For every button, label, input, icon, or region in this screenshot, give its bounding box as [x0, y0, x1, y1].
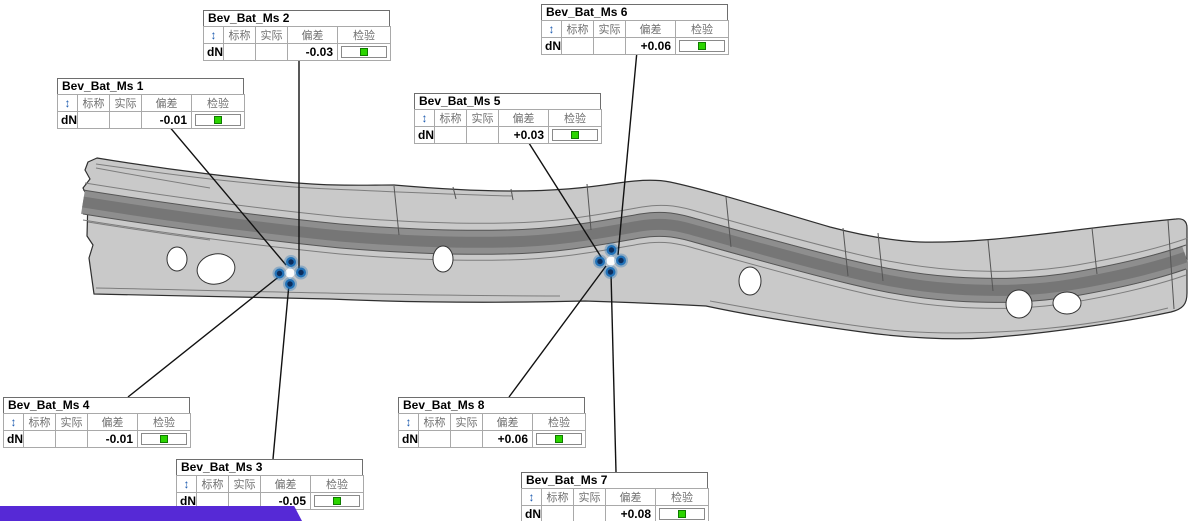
check-cell — [138, 431, 191, 448]
row-label: dN — [542, 38, 562, 55]
col-deviation-label: 偏差 — [88, 414, 138, 431]
nominal-value — [419, 431, 451, 448]
col-nominal-label: 标称 — [24, 414, 56, 431]
callout-table: ↕ 标称 实际 偏差 检验 dN +0.06 — [398, 413, 586, 448]
row-label: dN — [415, 127, 435, 144]
pass-indicator-square — [698, 42, 706, 50]
callout-title: Bev_Bat_Ms 1 — [57, 78, 244, 95]
callout-title: Bev_Bat_Ms 7 — [521, 472, 708, 489]
callout-title: Bev_Bat_Ms 8 — [398, 397, 585, 414]
pass-indicator-square — [555, 435, 563, 443]
col-actual-label: 实际 — [56, 414, 88, 431]
measurement-callout-ms4[interactable]: Bev_Bat_Ms 4 ↕ 标称 实际 偏差 检验 dN -0.01 — [3, 397, 190, 448]
col-check-label: 检验 — [533, 414, 586, 431]
callout-table: ↕ 标称 实际 偏差 检验 dN +0.03 — [414, 109, 602, 144]
callout-table: ↕ 标称 实际 偏差 检验 dN +0.06 — [541, 20, 729, 55]
check-indicator — [659, 508, 705, 520]
deviation-value: -0.01 — [88, 431, 138, 448]
col-deviation-label: 偏差 — [288, 27, 338, 44]
check-indicator — [679, 40, 725, 52]
measurement-point[interactable] — [593, 255, 607, 269]
pass-indicator-square — [571, 131, 579, 139]
nominal-value — [562, 38, 594, 55]
actual-value — [56, 431, 88, 448]
pass-indicator-square — [160, 435, 168, 443]
col-actual-label: 实际 — [574, 489, 606, 506]
direction-arrow-icon: ↕ — [522, 489, 542, 506]
measurement-point[interactable] — [283, 277, 297, 291]
row-label: dN — [399, 431, 419, 448]
pass-indicator-square — [333, 497, 341, 505]
col-check-label: 检验 — [192, 95, 245, 112]
row-label: dN — [58, 112, 78, 129]
leader-line-ms3 — [273, 284, 289, 459]
col-nominal-label: 标称 — [197, 476, 229, 493]
actual-value — [594, 38, 626, 55]
deviation-value: +0.08 — [606, 506, 656, 521]
col-nominal-label: 标称 — [224, 27, 256, 44]
col-actual-label: 实际 — [451, 414, 483, 431]
rail-part — [83, 158, 1188, 339]
check-indicator — [552, 129, 598, 141]
check-indicator — [314, 495, 360, 507]
row-label: dN — [522, 506, 542, 521]
check-cell — [676, 38, 729, 55]
col-check-label: 检验 — [311, 476, 364, 493]
check-indicator — [341, 46, 387, 58]
measurement-callout-ms1[interactable]: Bev_Bat_Ms 1 ↕ 标称 实际 偏差 检验 dN -0.01 — [57, 78, 244, 129]
deviation-value: -0.03 — [288, 44, 338, 61]
measurement-callout-ms7[interactable]: Bev_Bat_Ms 7 ↕ 标称 实际 偏差 检验 dN +0.08 — [521, 472, 708, 521]
check-cell — [311, 493, 364, 510]
row-label: dN — [4, 431, 24, 448]
col-check-label: 检验 — [138, 414, 191, 431]
direction-arrow-icon: ↕ — [204, 27, 224, 44]
col-check-label: 检验 — [549, 110, 602, 127]
col-nominal-label: 标称 — [78, 95, 110, 112]
check-cell — [656, 506, 709, 521]
direction-arrow-icon: ↕ — [177, 476, 197, 493]
report-canvas: Bev_Bat_Ms 1 ↕ 标称 实际 偏差 检验 dN -0.01 — [0, 0, 1188, 521]
callout-table: ↕ 标称 实际 偏差 检验 dN -0.05 — [176, 475, 364, 510]
direction-arrow-icon: ↕ — [415, 110, 435, 127]
row-label: dN — [204, 44, 224, 61]
check-indicator — [195, 114, 241, 126]
callout-title: Bev_Bat_Ms 5 — [414, 93, 601, 110]
callout-table: ↕ 标称 实际 偏差 检验 dN -0.01 — [57, 94, 245, 129]
callout-table: ↕ 标称 实际 偏差 检验 dN -0.01 — [3, 413, 191, 448]
check-cell — [549, 127, 602, 144]
callout-table: ↕ 标称 实际 偏差 检验 dN +0.08 — [521, 488, 709, 521]
check-indicator — [141, 433, 187, 445]
col-deviation-label: 偏差 — [142, 95, 192, 112]
hole — [167, 247, 187, 271]
hole — [1006, 290, 1032, 318]
pass-indicator-square — [214, 116, 222, 124]
callout-table: ↕ 标称 实际 偏差 检验 dN -0.03 — [203, 26, 391, 61]
actual-value — [467, 127, 499, 144]
direction-arrow-icon: ↕ — [4, 414, 24, 431]
measurement-callout-ms3[interactable]: Bev_Bat_Ms 3 ↕ 标称 实际 偏差 检验 dN -0.05 — [176, 459, 363, 510]
measurement-callout-ms2[interactable]: Bev_Bat_Ms 2 ↕ 标称 实际 偏差 检验 dN -0.03 — [203, 10, 390, 61]
pass-indicator-square — [360, 48, 368, 56]
col-nominal-label: 标称 — [562, 21, 594, 38]
check-indicator — [536, 433, 582, 445]
col-deviation-label: 偏差 — [626, 21, 676, 38]
measurement-point[interactable] — [614, 254, 628, 268]
actual-value — [256, 44, 288, 61]
measurement-callout-ms8[interactable]: Bev_Bat_Ms 8 ↕ 标称 实际 偏差 检验 dN +0.06 — [398, 397, 585, 448]
direction-arrow-icon: ↕ — [542, 21, 562, 38]
direction-arrow-icon: ↕ — [399, 414, 419, 431]
col-actual-label: 实际 — [594, 21, 626, 38]
col-check-label: 检验 — [338, 27, 391, 44]
nominal-value — [78, 112, 110, 129]
actual-value — [574, 506, 606, 521]
measurement-point[interactable] — [284, 255, 298, 269]
actual-value — [451, 431, 483, 448]
col-actual-label: 实际 — [229, 476, 261, 493]
nominal-value — [435, 127, 467, 144]
pass-indicator-square — [678, 510, 686, 518]
nominal-value — [24, 431, 56, 448]
footer-accent-bar — [0, 506, 302, 521]
col-actual-label: 实际 — [110, 95, 142, 112]
hole — [739, 267, 761, 295]
col-deviation-label: 偏差 — [499, 110, 549, 127]
hole — [433, 246, 453, 272]
col-check-label: 检验 — [656, 489, 709, 506]
measurement-point[interactable] — [605, 243, 619, 257]
col-check-label: 检验 — [676, 21, 729, 38]
direction-arrow-icon: ↕ — [58, 95, 78, 112]
measurement-callout-ms6[interactable]: Bev_Bat_Ms 6 ↕ 标称 实际 偏差 检验 dN +0.06 — [541, 4, 728, 55]
measurement-point[interactable] — [294, 266, 308, 280]
col-deviation-label: 偏差 — [483, 414, 533, 431]
check-cell — [533, 431, 586, 448]
col-nominal-label: 标称 — [435, 110, 467, 127]
actual-value — [110, 112, 142, 129]
measurement-point[interactable] — [273, 267, 287, 281]
col-nominal-label: 标称 — [542, 489, 574, 506]
col-nominal-label: 标称 — [419, 414, 451, 431]
nominal-value — [224, 44, 256, 61]
measurement-point[interactable] — [604, 265, 618, 279]
callout-title: Bev_Bat_Ms 2 — [203, 10, 390, 27]
col-deviation-label: 偏差 — [606, 489, 656, 506]
callout-title: Bev_Bat_Ms 4 — [3, 397, 190, 414]
measurement-callout-ms5[interactable]: Bev_Bat_Ms 5 ↕ 标称 实际 偏差 检验 dN +0.03 — [414, 93, 601, 144]
deviation-value: -0.01 — [142, 112, 192, 129]
col-actual-label: 实际 — [467, 110, 499, 127]
check-cell — [338, 44, 391, 61]
callout-title: Bev_Bat_Ms 6 — [541, 4, 728, 21]
nominal-value — [542, 506, 574, 521]
deviation-value: +0.06 — [483, 431, 533, 448]
hole — [1053, 292, 1081, 314]
deviation-value: +0.06 — [626, 38, 676, 55]
col-actual-label: 实际 — [256, 27, 288, 44]
deviation-value: +0.03 — [499, 127, 549, 144]
check-cell — [192, 112, 245, 129]
col-deviation-label: 偏差 — [261, 476, 311, 493]
leader-line-ms7 — [611, 273, 616, 472]
callout-title: Bev_Bat_Ms 3 — [176, 459, 363, 476]
